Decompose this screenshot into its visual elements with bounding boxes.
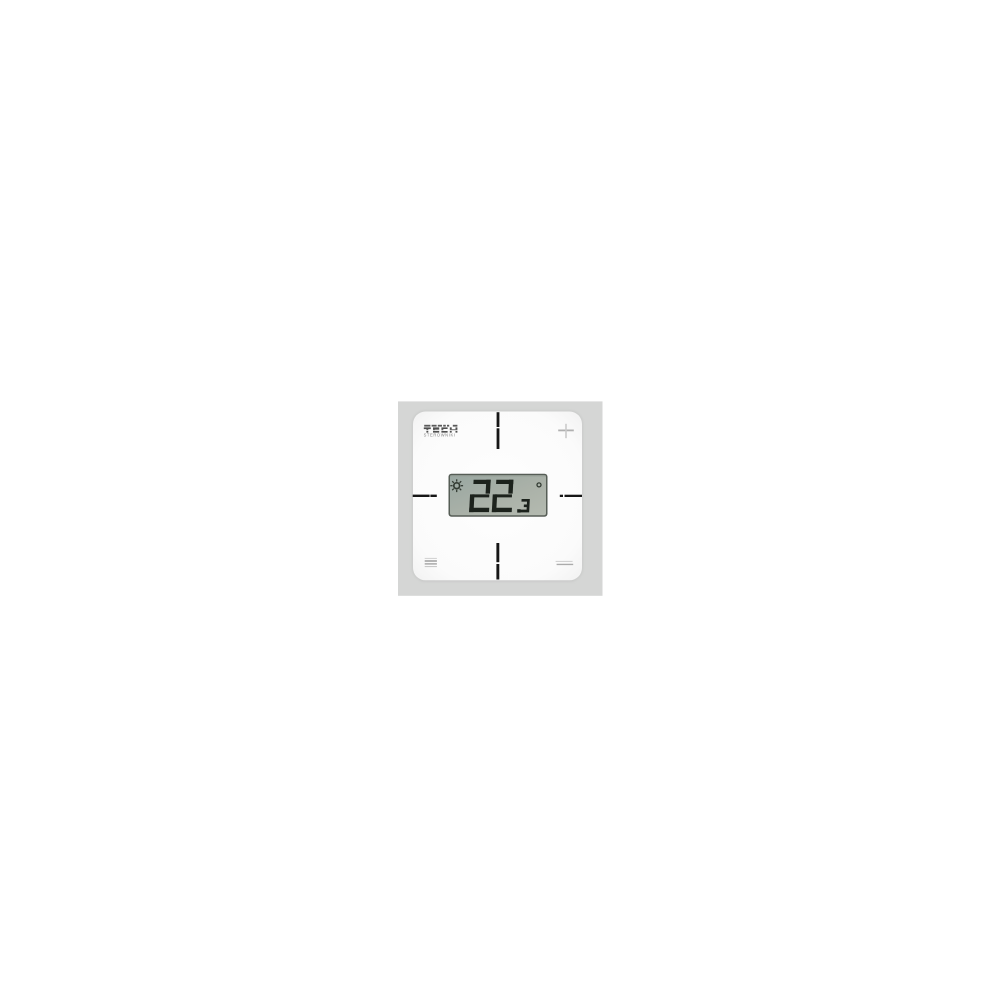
svg-text:STEROWNIKI: STEROWNIKI: [424, 433, 456, 438]
